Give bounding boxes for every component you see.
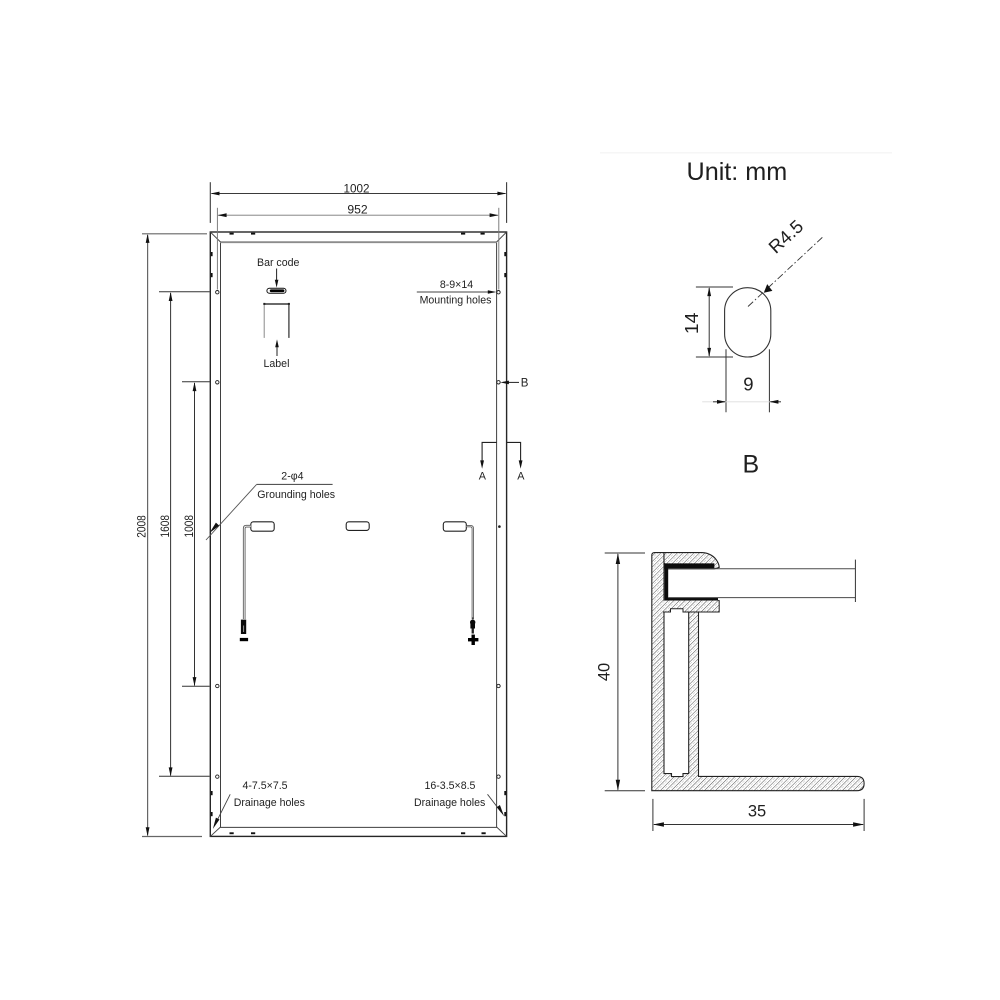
- svg-text:Label: Label: [264, 358, 290, 370]
- svg-text:B: B: [743, 451, 760, 479]
- svg-text:2-φ4: 2-φ4: [281, 470, 303, 482]
- svg-text:Drainage holes: Drainage holes: [234, 797, 305, 809]
- svg-text:Bar code: Bar code: [257, 257, 300, 269]
- svg-text:B: B: [521, 378, 529, 390]
- svg-text:Drainage holes: Drainage holes: [414, 797, 485, 809]
- svg-text:Mounting holes: Mounting holes: [420, 295, 492, 307]
- svg-text:9: 9: [743, 374, 753, 395]
- svg-text:2008: 2008: [135, 515, 149, 538]
- svg-text:4-7.5×7.5: 4-7.5×7.5: [243, 780, 288, 792]
- svg-text:1608: 1608: [158, 515, 172, 538]
- svg-text:A: A: [479, 471, 487, 483]
- svg-text:1002: 1002: [344, 182, 370, 196]
- svg-text:1008: 1008: [182, 515, 196, 538]
- svg-text:A: A: [517, 471, 525, 483]
- svg-text:Unit: mm: Unit: mm: [687, 158, 788, 186]
- svg-text:16-3.5×8.5: 16-3.5×8.5: [425, 780, 476, 792]
- svg-text:40: 40: [595, 663, 613, 681]
- svg-text:14: 14: [681, 313, 702, 335]
- svg-text:35: 35: [748, 802, 766, 820]
- svg-text:8-9×14: 8-9×14: [440, 279, 473, 291]
- svg-text:Grounding holes: Grounding holes: [257, 489, 335, 501]
- svg-text:952: 952: [347, 202, 368, 216]
